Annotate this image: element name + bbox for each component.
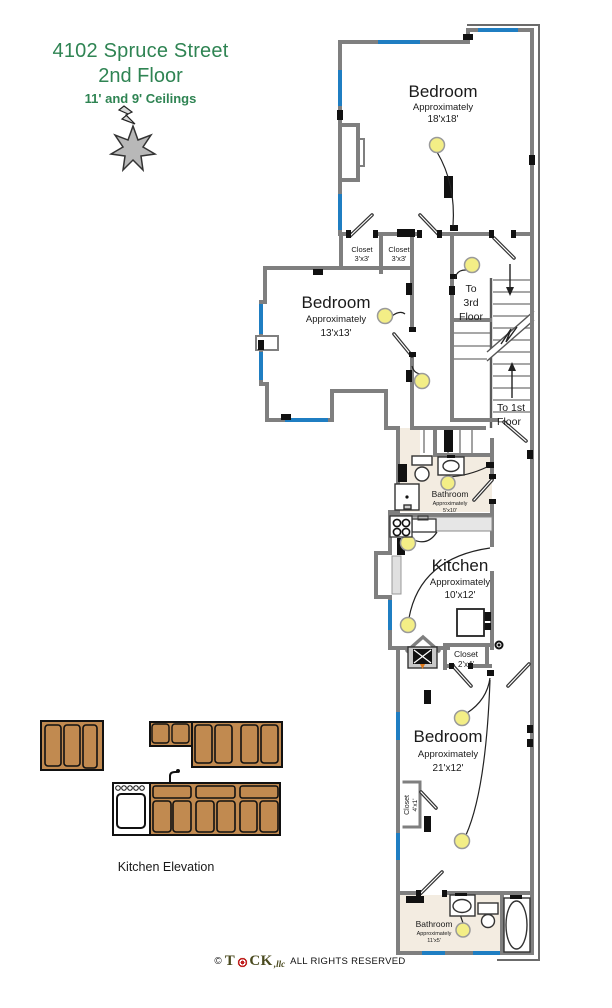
- target-icon: [237, 957, 248, 968]
- closet-d-name: Closet: [404, 795, 411, 815]
- bedroom-bottom-size: 21'x12': [432, 763, 463, 774]
- ceiling-light-icon: [455, 834, 470, 849]
- ceiling-light-icon: [378, 309, 393, 324]
- to-3rd-floor-line3: Floor: [459, 311, 483, 323]
- fireplace-icon: [406, 637, 440, 669]
- closet-a-size: 3'x3': [355, 254, 371, 263]
- to-1st-floor-line1: To 1st: [497, 402, 525, 414]
- to-3rd-floor-line2: 3rd: [463, 297, 478, 309]
- bathroom-upper-size: 5'x10': [443, 508, 457, 514]
- ceiling-light-icon: [465, 258, 480, 273]
- closet-b-name: Closet: [388, 245, 410, 254]
- to-3rd-floor-line1: To: [465, 283, 476, 295]
- ceiling-light-icon: [401, 536, 416, 551]
- rights-reserved-text: ALL RIGHTS RESERVED: [290, 956, 406, 967]
- north-bolt-icon: [119, 106, 135, 124]
- brand-letters-ck: CK: [249, 953, 273, 970]
- closet-a-name: Closet: [351, 245, 373, 254]
- compass-star-icon: [111, 126, 155, 170]
- closet-b-size: 3'x3': [392, 254, 408, 263]
- bathroom-upper-name: Bathroom: [432, 489, 469, 499]
- bedroom-middle-approx: Approximately: [306, 314, 366, 325]
- to-1st-floor-line2: Floor: [497, 416, 521, 428]
- kitchen-approx: Approximately: [430, 577, 490, 588]
- bedroom-top-size: 18'x18': [427, 114, 458, 125]
- faucet-icon: [170, 772, 177, 783]
- ceiling-fan-icon: [495, 641, 504, 650]
- closet-d-size: 4'x1': [412, 799, 419, 812]
- bathroom-lower-size: 11'x5': [427, 938, 441, 944]
- brand-suffix: ,llc: [274, 959, 285, 970]
- ceiling-light-icon: [441, 476, 455, 490]
- floor-plan-page: Bedroom Approximately 18'x18' Bedroom Ap…: [0, 0, 612, 1008]
- ceiling-light-icon: [455, 711, 470, 726]
- copyright-footer: © T CK ,llc ALL RIGHTS RESERVED: [150, 953, 470, 970]
- floor-plan-drawing: Bedroom Approximately 18'x18' Bedroom Ap…: [0, 0, 612, 1008]
- plan-title-address: 4102 Spruce Street: [18, 40, 263, 63]
- ceiling-light-icon: [401, 618, 416, 633]
- plan-title-floor: 2nd Floor: [18, 65, 263, 88]
- closet-c-size: 2'x4': [458, 660, 474, 669]
- closet-c-name: Closet: [454, 649, 479, 659]
- plan-title-block: 4102 Spruce Street 2nd Floor 11' and 9' …: [18, 40, 263, 106]
- bedroom-bottom-name: Bedroom: [414, 727, 483, 746]
- bedroom-middle-size: 13'x13': [320, 328, 351, 339]
- compass-rose: [111, 106, 155, 170]
- bathroom-upper-approx: Approximately: [433, 501, 468, 507]
- kitchen-name: Kitchen: [432, 556, 489, 575]
- kitchen-size: 10'x12': [444, 590, 475, 601]
- ceiling-light-icon: [415, 374, 430, 389]
- brand-letter-t: T: [225, 953, 236, 970]
- kitchen-elevation-drawing: [41, 721, 282, 835]
- plan-title-ceilings: 11' and 9' Ceilings: [18, 91, 263, 106]
- bedroom-top-approx: Approximately: [413, 102, 473, 113]
- bathroom-lower-name: Bathroom: [416, 919, 453, 929]
- kitchen-elevation-label: Kitchen Elevation: [58, 860, 274, 874]
- bedroom-top-name: Bedroom: [409, 82, 478, 101]
- bedroom-middle-name: Bedroom: [302, 293, 371, 312]
- ceiling-light-icon: [430, 138, 445, 153]
- bedroom-bottom-approx: Approximately: [418, 749, 478, 760]
- copyright-symbol: ©: [214, 956, 221, 967]
- ceiling-light-icon: [456, 923, 470, 937]
- bathroom-lower-approx: Approximately: [417, 931, 452, 937]
